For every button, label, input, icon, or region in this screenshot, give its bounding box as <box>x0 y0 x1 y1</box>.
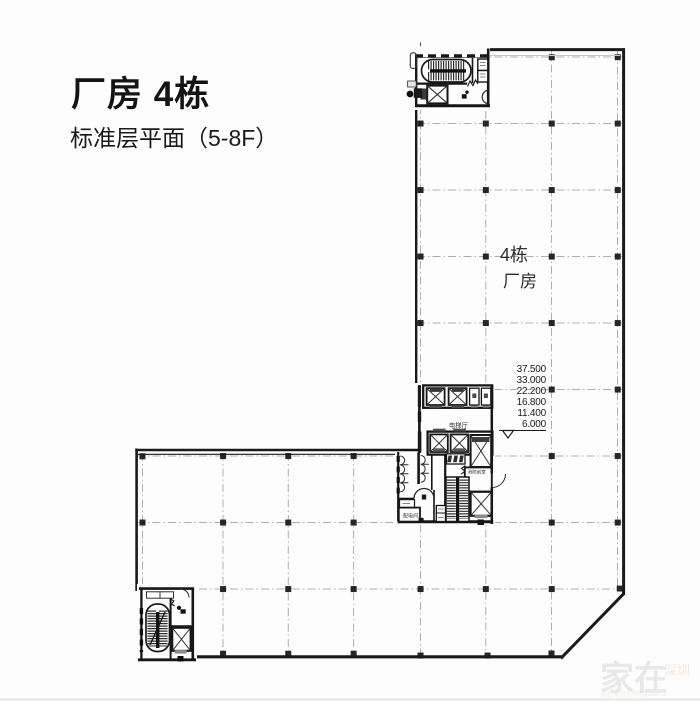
svg-text:11.400: 11.400 <box>517 408 546 419</box>
svg-text:6.000: 6.000 <box>522 419 547 430</box>
svg-text:消防前室: 消防前室 <box>468 469 487 476</box>
svg-text:22.200: 22.200 <box>517 386 547 397</box>
svg-text:37.500: 37.500 <box>517 364 547 375</box>
svg-text:电梯厅: 电梯厅 <box>449 421 468 430</box>
svg-text:深圳: 深圳 <box>664 663 690 678</box>
svg-text:家在深圳房产网 jiazai.sz: 家在深圳房产网 jiazai.sz <box>601 690 666 698</box>
svg-text:33.000: 33.000 <box>517 375 547 386</box>
svg-text:16.800: 16.800 <box>517 397 547 408</box>
svg-text:4栋: 4栋 <box>500 245 528 265</box>
svg-text:配电间: 配电间 <box>403 513 418 520</box>
svg-text:厂房: 厂房 <box>503 272 537 291</box>
